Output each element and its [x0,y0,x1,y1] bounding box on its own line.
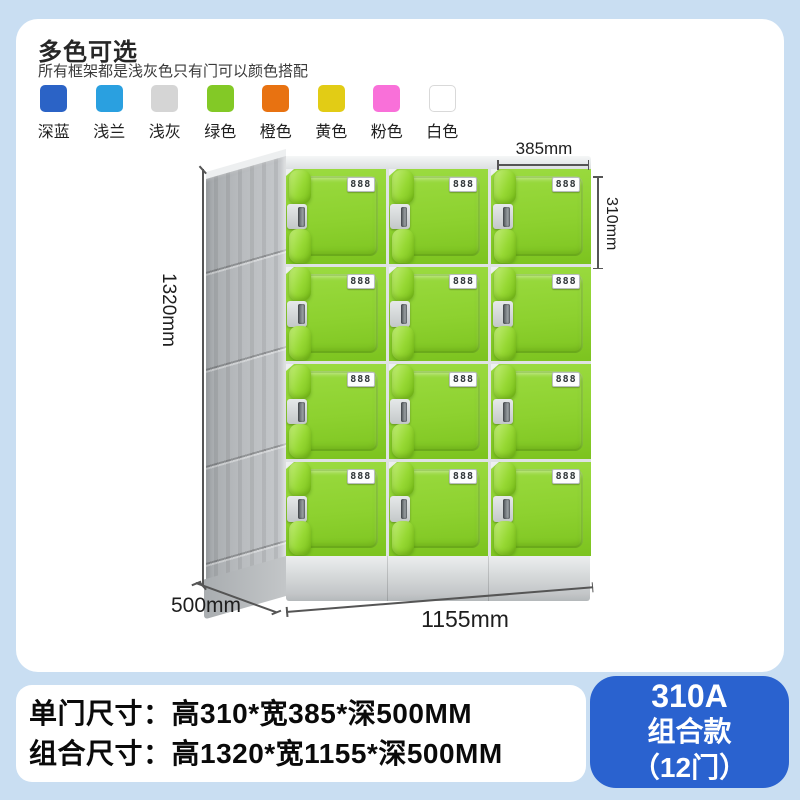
spec-box: 单门尺寸：高310*宽385*深500MM 组合尺寸：高1320*宽1155*深… [16,685,586,782]
color-swatch [96,85,123,112]
color-swatch [151,85,178,112]
section-subtitle: 所有框架都是浅灰色只有门可以颜色搭配 [38,60,308,81]
color-option: 粉色 [359,85,415,142]
color-swatch [207,85,234,112]
badge-model: 310A [651,678,728,714]
color-swatch-row: 深蓝浅兰浅灰绿色橙色黄色粉色白色 [26,85,470,142]
color-swatch-label: 黄色 [315,118,347,142]
color-option: 橙色 [248,85,304,142]
color-swatch-label: 浅兰 [93,118,125,142]
color-swatch [429,85,456,112]
model-badge: 310A 组合款 （12门） [590,676,789,788]
color-swatch [318,85,345,112]
color-swatch-label: 绿色 [204,118,236,142]
color-swatch [262,85,289,112]
color-swatch-label: 白色 [426,118,458,142]
badge-series: 组合款 [647,714,731,750]
spec-combo-size: 组合尺寸：高1320*宽1155*深500MM [29,734,586,774]
color-swatch [40,85,67,112]
spec-door-size: 单门尺寸：高310*宽385*深500MM [29,694,586,734]
color-option: 绿色 [193,85,249,142]
color-swatch-label: 深蓝 [38,118,70,142]
color-option: 浅灰 [137,85,193,142]
badge-doors: （12门） [632,750,747,786]
color-swatch-label: 浅灰 [149,118,181,142]
color-swatch-label: 橙色 [260,118,292,142]
color-option: 深蓝 [26,85,82,142]
color-option: 黄色 [304,85,360,142]
color-option: 白色 [415,85,471,142]
color-swatch-label: 粉色 [371,118,403,142]
color-option: 浅兰 [82,85,138,142]
color-swatch [373,85,400,112]
